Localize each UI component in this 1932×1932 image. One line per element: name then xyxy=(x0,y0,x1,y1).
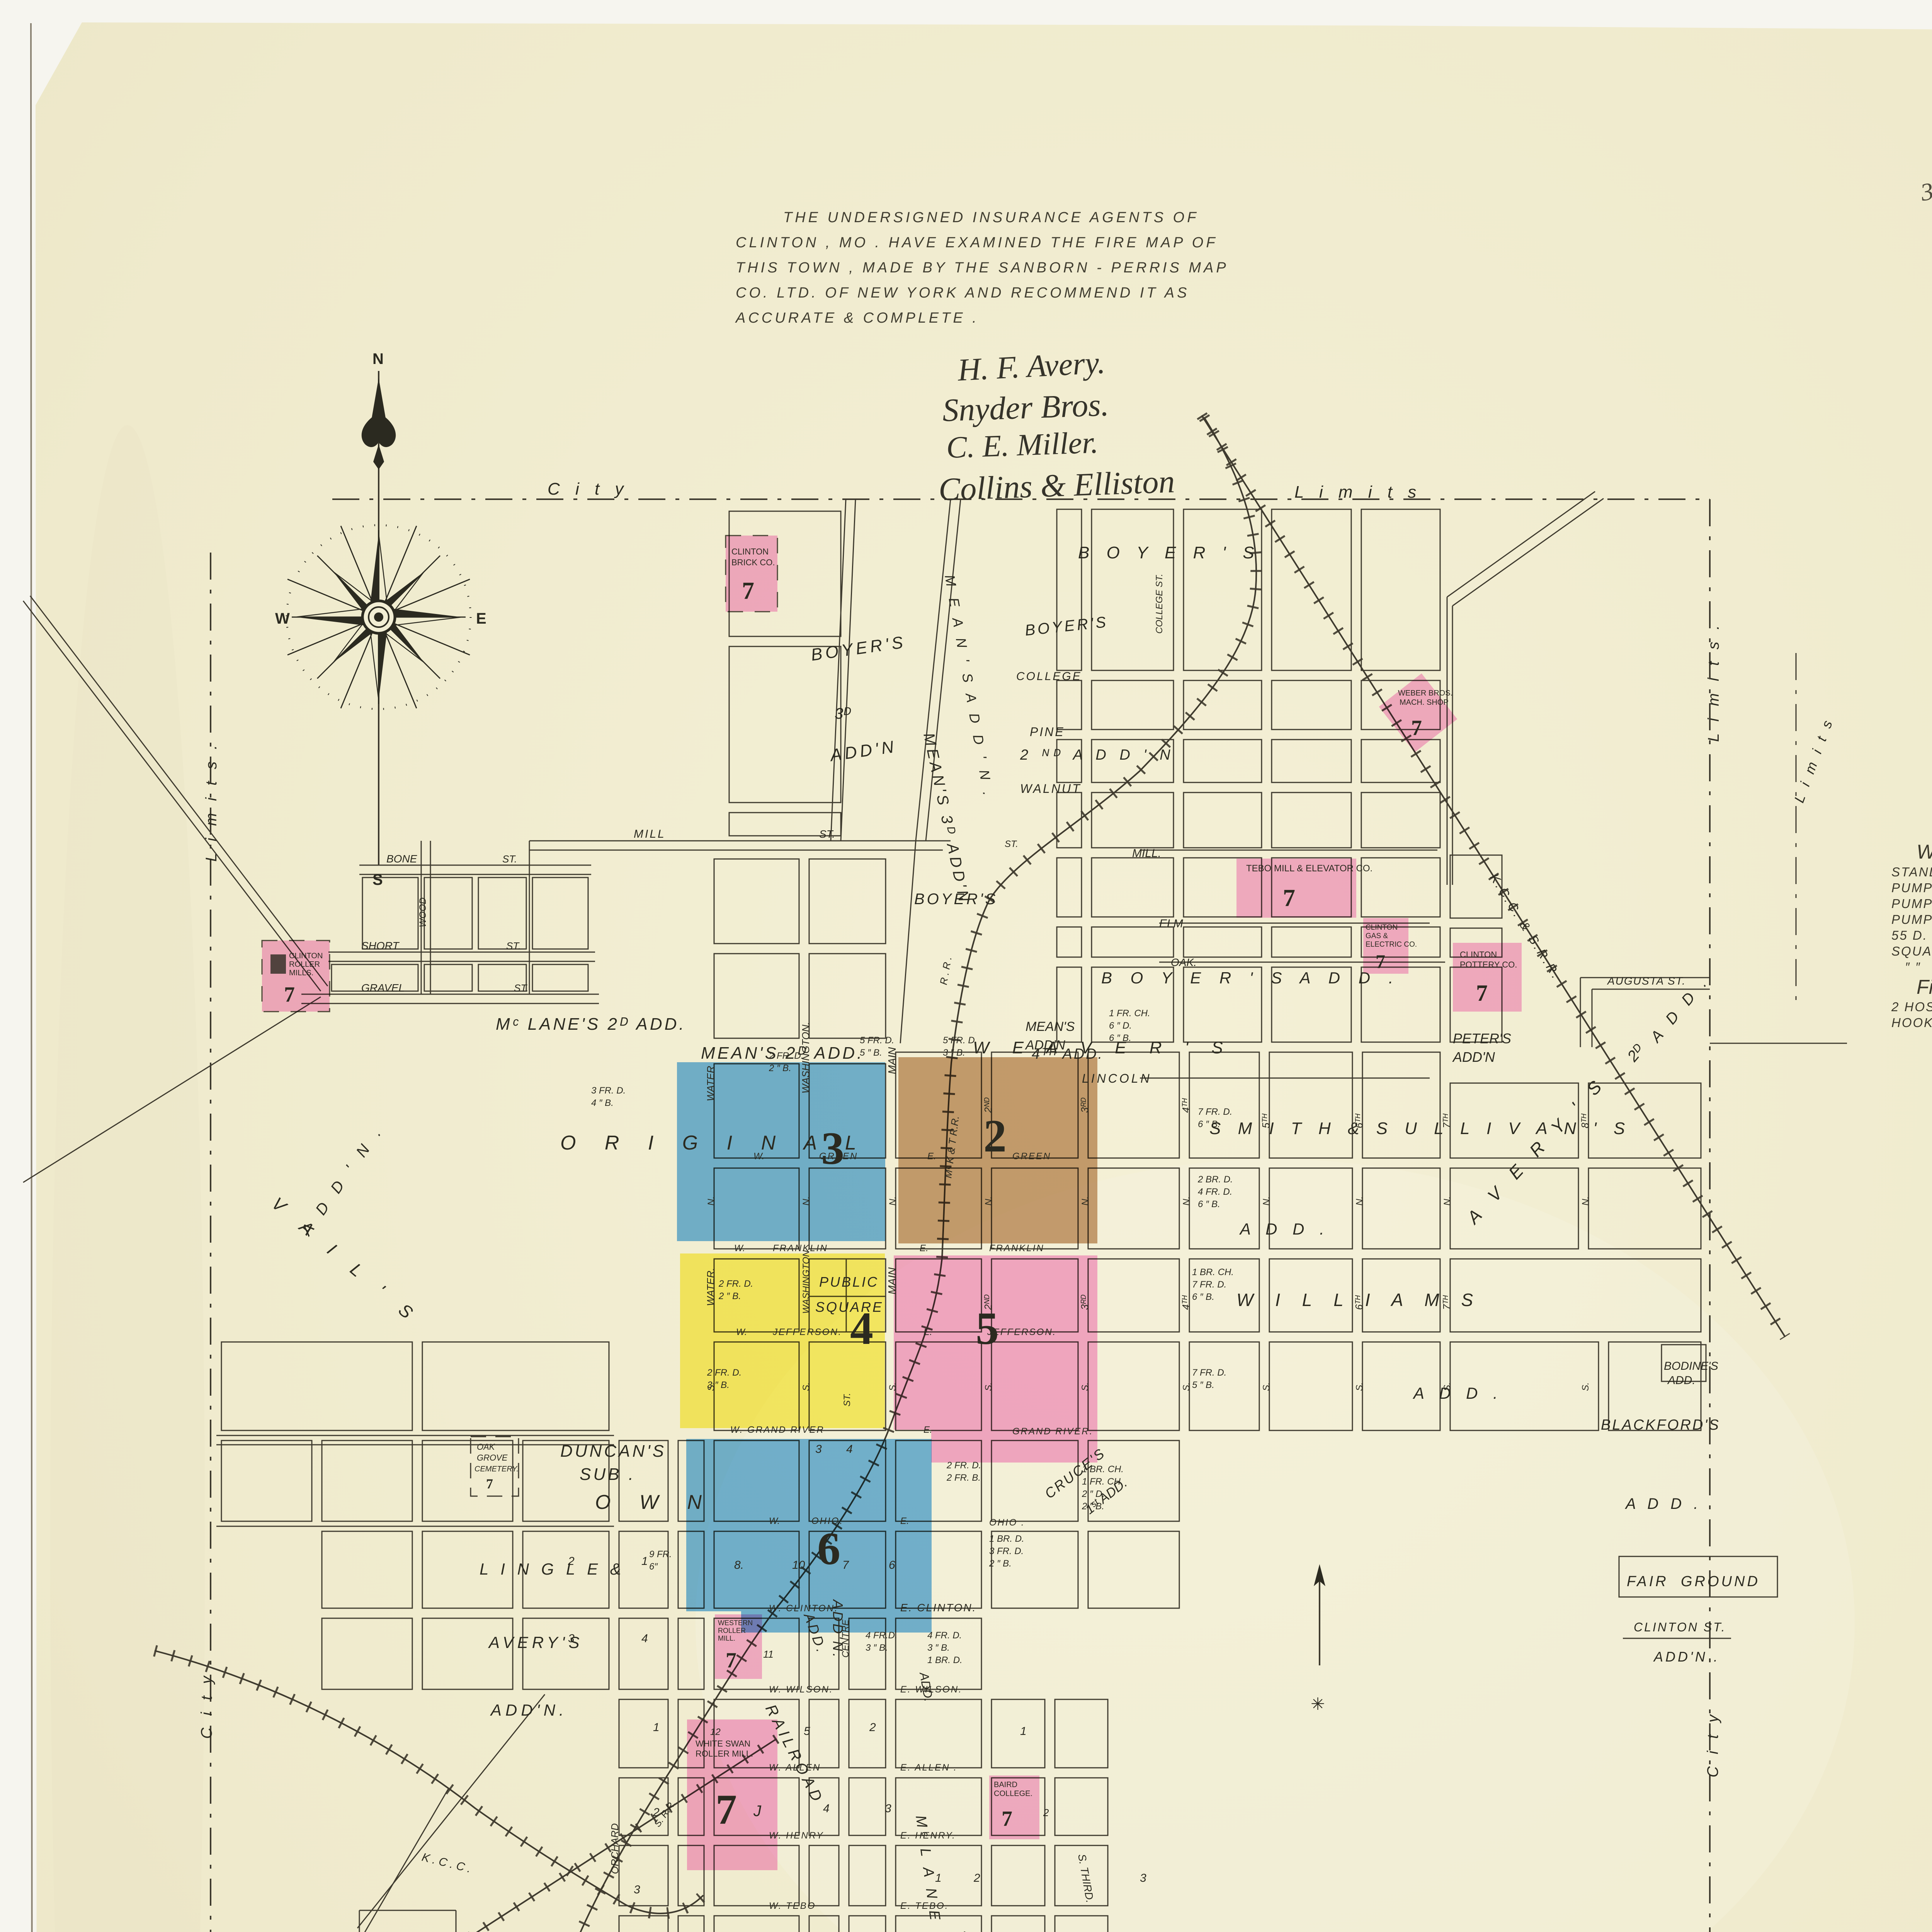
svg-text:2 FR. D.: 2 FR. D. xyxy=(946,1460,981,1471)
svg-text:CLINTON , MO . HAVE EXAMINED: CLINTON , MO . HAVE EXAMINED THE FIRE MA… xyxy=(736,235,1218,251)
svg-text:2 ″ B.: 2 ″ B. xyxy=(769,1063,791,1073)
svg-text:WESTERN: WESTERN xyxy=(718,1619,753,1627)
svg-text:N.: N. xyxy=(1580,1196,1591,1206)
svg-text:FRANKLIN: FRANKLIN xyxy=(773,1243,828,1253)
svg-text:CO. LTD. OF NEW YORK AND: CO. LTD. OF NEW YORK AND RECOMMEND IT AS xyxy=(736,285,1189,301)
svg-text:5 ″ B.: 5 ″ B. xyxy=(1192,1380,1214,1390)
svg-text:5ᵀᴴ: 5ᵀᴴ xyxy=(1260,1113,1272,1128)
svg-text:7: 7 xyxy=(842,1559,849,1571)
svg-text:L i m i t s .: L i m i t s . xyxy=(1705,621,1722,742)
svg-text:E.: E. xyxy=(927,1151,936,1162)
svg-text:ELM: ELM xyxy=(1159,917,1183,930)
svg-text:A D D .: A D D . xyxy=(1625,1495,1702,1512)
svg-text:C i t y: C i t y xyxy=(198,1672,215,1739)
svg-text:WHITE SWAN: WHITE SWAN xyxy=(696,1739,750,1748)
svg-text:7 FR. D.: 7 FR. D. xyxy=(1192,1367,1226,1378)
svg-text:6 ″ D.: 6 ″ D. xyxy=(1109,1020,1132,1031)
svg-text:MAIN: MAIN xyxy=(886,1267,898,1294)
svg-text:3ᴿᴰ: 3ᴿᴰ xyxy=(1079,1295,1090,1310)
svg-text:N.: N. xyxy=(706,1196,716,1206)
svg-text:OAK.: OAK. xyxy=(1171,956,1197,968)
svg-text:ROLLER: ROLLER xyxy=(289,960,320,969)
svg-text:2: 2 xyxy=(983,1110,1007,1162)
svg-text:3ᴿᴰ: 3ᴿᴰ xyxy=(1079,1098,1090,1113)
svg-text:N: N xyxy=(372,350,384,367)
svg-text:ST.: ST. xyxy=(1005,839,1018,849)
svg-text:OHIO .: OHIO . xyxy=(989,1517,1025,1528)
svg-text:6 ″ B.: 6 ″ B. xyxy=(1109,1033,1131,1043)
svg-text:CEMETERY.: CEMETERY. xyxy=(474,1465,519,1473)
svg-text:ELECTRIC CO.: ELECTRIC CO. xyxy=(1366,940,1417,949)
svg-text:2: 2 xyxy=(568,1555,575,1568)
svg-text:S.: S. xyxy=(888,1382,898,1391)
svg-text:3: 3 xyxy=(815,1443,822,1456)
svg-text:SUB .: SUB . xyxy=(580,1465,636,1484)
svg-text:N.: N. xyxy=(983,1196,994,1206)
svg-text:E. WILSON.: E. WILSON. xyxy=(900,1684,963,1695)
svg-text:4 FR. D.: 4 FR. D. xyxy=(1198,1187,1232,1197)
svg-text:GRAVEL: GRAVEL xyxy=(361,982,405,994)
svg-text:2: 2 xyxy=(653,1806,660,1819)
svg-text:N.: N. xyxy=(1442,1196,1452,1206)
svg-text:CLINTON: CLINTON xyxy=(289,952,323,960)
svg-text:9 FR.: 9 FR. xyxy=(649,1549,672,1560)
svg-text:E. TEBO.: E. TEBO. xyxy=(900,1901,949,1911)
svg-text:7: 7 xyxy=(1411,716,1422,740)
svg-text:7 FR. D.: 7 FR. D. xyxy=(1198,1107,1232,1117)
svg-text:MILL: MILL xyxy=(634,828,666,840)
svg-text:6ᵀᴴ: 6ᵀᴴ xyxy=(1353,1113,1365,1128)
svg-text:A D D .: A D D . xyxy=(1239,1220,1330,1238)
svg-text:6: 6 xyxy=(817,1523,840,1574)
svg-text:8ᵀᴴ: 8ᵀᴴ xyxy=(1579,1113,1591,1128)
svg-text:2ᴺᴰ: 2ᴺᴰ xyxy=(982,1294,994,1310)
svg-text:2 FR. D.: 2 FR. D. xyxy=(718,1279,753,1289)
svg-text:2 FR. B.: 2 FR. B. xyxy=(946,1473,981,1483)
svg-text:ORCHARD: ORCHARD xyxy=(609,1823,621,1874)
svg-text:E. CLINTON.: E. CLINTON. xyxy=(900,1602,976,1614)
svg-text:1 FR. CH.: 1 FR. CH. xyxy=(1109,1008,1150,1019)
svg-text:E.: E. xyxy=(923,1425,932,1435)
svg-text:S.: S. xyxy=(1080,1382,1090,1391)
svg-text:5: 5 xyxy=(804,1725,810,1738)
svg-text:STAND PIPE 120' 10' DIAM , CAP: STAND PIPE 120' 10' DIAM , CAP. 80000 GA… xyxy=(1891,865,1932,879)
svg-text:CLINTON: CLINTON xyxy=(731,547,769,556)
svg-text:ADD'N .: ADD'N . xyxy=(1653,1649,1720,1665)
svg-text:N.: N. xyxy=(888,1196,898,1206)
svg-text:MILL.: MILL. xyxy=(1132,847,1161,860)
svg-text:6 ″ B.: 6 ″ B. xyxy=(1198,1199,1220,1209)
svg-text:2: 2 xyxy=(1043,1807,1049,1818)
svg-text:55 D. HYD'TS . DOMESTIC PR: 55 D. HYD'TS . DOMESTIC PRESSURE 40 LBS.… xyxy=(1891,928,1932,942)
svg-text:WATER.: WATER. xyxy=(705,1268,716,1306)
svg-text:B O Y E R ' S A D D .: B O Y E R ' S A D D . xyxy=(1101,969,1400,987)
svg-text:7 FR. D.: 7 FR. D. xyxy=(1192,1279,1226,1290)
svg-text:BAIRD: BAIRD xyxy=(994,1781,1017,1789)
svg-text:7: 7 xyxy=(284,983,295,1007)
svg-text:C i t y: C i t y xyxy=(548,480,629,498)
svg-text:E. ALLEN .: E. ALLEN . xyxy=(900,1762,957,1773)
svg-text:4 ″ B.: 4 ″ B. xyxy=(591,1098,614,1108)
svg-text:JEFFERSON.: JEFFERSON. xyxy=(987,1327,1056,1337)
svg-text:1: 1 xyxy=(641,1555,648,1568)
svg-text:C i t y: C i t y xyxy=(1704,1711,1721,1777)
svg-text:2 ″ B.: 2 ″ B. xyxy=(718,1291,741,1301)
svg-text:S.: S. xyxy=(1261,1382,1272,1391)
svg-text:W. ALLEN: W. ALLEN xyxy=(769,1762,821,1773)
svg-text:2ᴺᴰ: 2ᴺᴰ xyxy=(982,1097,994,1113)
svg-text:L i m i t s .: L i m i t s . xyxy=(203,741,220,862)
svg-text:PUMP CAP. 9,000 GALL'S .: PUMP CAP. 9,000 GALL'S . 9½ MILES OF PIP… xyxy=(1891,912,1932,927)
svg-text:PUMPS CAP. 125,000 GALL'S E: PUMPS CAP. 125,000 GALL'S EACH & ONE DEA… xyxy=(1891,896,1932,911)
svg-text:3 FR. D.: 3 FR. D. xyxy=(591,1085,626,1096)
svg-text:6″: 6″ xyxy=(649,1561,658,1572)
svg-text:7: 7 xyxy=(1002,1807,1012,1831)
svg-text:2 ″ B.: 2 ″ B. xyxy=(1082,1501,1104,1512)
svg-text:SQUARE INCH . FIRE: SQUARE INCH . FIRE ″ 80 ″ ″ xyxy=(1891,944,1932,958)
svg-text:3: 3 xyxy=(634,1883,640,1896)
svg-text:W.: W. xyxy=(753,1151,764,1162)
svg-text:6: 6 xyxy=(889,1559,895,1571)
svg-text:ST.: ST. xyxy=(819,828,835,840)
svg-text:JEFFERSON.: JEFFERSON. xyxy=(772,1327,842,1337)
svg-text:N.: N. xyxy=(1181,1196,1192,1206)
svg-text:ST.: ST. xyxy=(506,940,521,952)
svg-text:4ᵀᴴ: 4ᵀᴴ xyxy=(1180,1098,1192,1113)
svg-text:ROLLER MILL.: ROLLER MILL. xyxy=(696,1749,753,1759)
svg-text:4: 4 xyxy=(823,1802,830,1815)
svg-text:1 BR. CH.: 1 BR. CH. xyxy=(1192,1267,1234,1277)
svg-text:SHORT: SHORT xyxy=(361,940,400,952)
svg-text:N.: N. xyxy=(1354,1196,1365,1206)
svg-text:2 BR. D.: 2 BR. D. xyxy=(1197,1174,1233,1185)
svg-text:MACH. SHOP: MACH. SHOP xyxy=(1400,698,1449,707)
svg-text:FAIR: FAIR xyxy=(1627,1573,1668,1590)
svg-text:OAK: OAK xyxy=(477,1442,495,1452)
svg-text:Snyder Bros.: Snyder Bros. xyxy=(942,387,1109,429)
svg-text:4ᵀᴴ: 4ᵀᴴ xyxy=(1180,1295,1192,1310)
svg-text:1: 1 xyxy=(935,1872,942,1884)
svg-text:HOOK & LADDER TRUCK , ALL DRI: HOOK & LADDER TRUCK , ALL DRIVEN BY HAND… xyxy=(1891,1015,1932,1030)
svg-text:WEBER BROS.: WEBER BROS. xyxy=(1398,689,1452,697)
svg-text:BRICK CO.: BRICK CO. xyxy=(731,558,775,567)
svg-text:THIS TOWN , MADE BY THE SA: THIS TOWN , MADE BY THE SANBORN - PERRIS… xyxy=(736,260,1229,276)
svg-text:WALNUT: WALNUT xyxy=(1020,782,1082,796)
svg-text:1 FR. CH.: 1 FR. CH. xyxy=(1082,1476,1123,1487)
svg-text:3 ″ B.: 3 ″ B. xyxy=(927,1643,950,1653)
svg-text:6 ″ B.: 6 ″ B. xyxy=(1198,1119,1220,1129)
svg-text:GRAND RIVER.: GRAND RIVER. xyxy=(1012,1426,1093,1437)
svg-text:7: 7 xyxy=(486,1476,493,1492)
svg-text:1: 1 xyxy=(653,1721,660,1734)
svg-text:ADD.: ADD. xyxy=(1667,1374,1696,1387)
svg-text:WASHINGTON.: WASHINGTON. xyxy=(801,1248,811,1314)
svg-text:1 BR. CH.: 1 BR. CH. xyxy=(1082,1464,1124,1475)
svg-text:2 FR. D.: 2 FR. D. xyxy=(769,1051,803,1061)
svg-text:PETER'S: PETER'S xyxy=(1453,1031,1511,1046)
svg-text:E.: E. xyxy=(923,1327,932,1337)
svg-text:WOOD: WOOD xyxy=(418,898,428,927)
svg-text:2 ″ B.: 2 ″ B. xyxy=(989,1558,1012,1569)
svg-text:CLINTON ST.: CLINTON ST. xyxy=(1634,1620,1726,1634)
svg-text:GROUND: GROUND xyxy=(1681,1573,1760,1590)
svg-text:2 ᴺᴰ A D D ' N: 2 ᴺᴰ A D D ' N xyxy=(1020,747,1175,763)
svg-text:5 FR. D.: 5 FR. D. xyxy=(860,1035,894,1046)
svg-text:4 FR.D.: 4 FR.D. xyxy=(866,1630,898,1641)
svg-text:3: 3 xyxy=(885,1802,891,1815)
svg-text:A D D .: A D D . xyxy=(1412,1384,1503,1402)
svg-text:7: 7 xyxy=(726,1648,736,1672)
svg-text:W: W xyxy=(275,610,290,627)
svg-text:MILLS.: MILLS. xyxy=(289,969,313,977)
svg-text:BODINE'S: BODINE'S xyxy=(1664,1360,1718,1372)
svg-text:L i m i t s: L i m i t s xyxy=(1294,483,1422,502)
svg-text:E. HENRY.: E. HENRY. xyxy=(900,1830,956,1841)
svg-text:DUNCAN'S: DUNCAN'S xyxy=(560,1442,666,1461)
svg-text:BLACKFORD'S: BLACKFORD'S xyxy=(1601,1417,1720,1433)
svg-text:COLLEGE.: COLLEGE. xyxy=(994,1789,1032,1798)
svg-text:WATER: WATER xyxy=(705,1066,716,1101)
svg-text:MILL.: MILL. xyxy=(718,1634,735,1642)
svg-text:S.: S. xyxy=(1442,1382,1452,1391)
svg-text:C. E. Miller.: C. E. Miller. xyxy=(946,425,1099,465)
svg-text:5 ″ B.: 5 ″ B. xyxy=(860,1048,882,1058)
svg-text:BONE: BONE xyxy=(386,853,417,865)
svg-text:N.: N. xyxy=(1080,1196,1090,1206)
svg-text:GROVE: GROVE xyxy=(477,1453,508,1463)
svg-text:GAS &: GAS & xyxy=(1366,932,1388,940)
svg-text:3: 3 xyxy=(1140,1872,1146,1884)
svg-text:2 HOSE CARTS & 550' OF 2½″ H: 2 HOSE CARTS & 550' OF 2½″ HOSE ON EACH … xyxy=(1891,1000,1932,1014)
svg-text:CLINTON: CLINTON xyxy=(1460,950,1497,959)
svg-text:S.: S. xyxy=(1181,1382,1192,1391)
svg-text:O W N: O W N xyxy=(595,1491,713,1514)
svg-text:2: 2 xyxy=(869,1721,876,1734)
svg-text:PINE: PINE xyxy=(1030,725,1065,739)
svg-text:PUMP HO. 1¼ MILES S.W. OF S: PUMP HO. 1¼ MILES S.W. OF SQUARE , 2 PER… xyxy=(1891,881,1932,895)
svg-text:W. GRAND RIVER: W. GRAND RIVER xyxy=(730,1425,825,1435)
svg-text:S.: S. xyxy=(1354,1382,1365,1391)
svg-text:W.: W. xyxy=(734,1243,745,1253)
svg-text:PUBLIC: PUBLIC xyxy=(819,1274,879,1290)
svg-text:W. TEBO: W. TEBO xyxy=(769,1901,816,1911)
svg-text:1: 1 xyxy=(1020,1725,1027,1738)
svg-text:3 FR. D.: 3 FR. D. xyxy=(989,1546,1024,1556)
svg-text:W. WILSON.: W. WILSON. xyxy=(769,1684,833,1695)
svg-text:GREEN: GREEN xyxy=(819,1151,858,1162)
svg-text:11: 11 xyxy=(763,1648,774,1660)
svg-text:J: J xyxy=(753,1803,762,1820)
svg-text:TEBO MILL & ELEVATOR CO.: TEBO MILL & ELEVATOR CO. xyxy=(1246,863,1372,874)
svg-text:ACCURATE & COMPLETE .: ACCURATE & COMPLETE . xyxy=(735,310,979,326)
svg-text:7: 7 xyxy=(1476,980,1488,1006)
svg-text:W.: W. xyxy=(769,1516,780,1526)
svg-text:8.: 8. xyxy=(734,1559,744,1571)
svg-text:GREEN: GREEN xyxy=(1012,1151,1051,1162)
svg-text:ST.: ST. xyxy=(514,982,529,994)
svg-text:BOYER'S: BOYER'S xyxy=(914,891,998,908)
svg-text:ADD'N: ADD'N xyxy=(1452,1049,1495,1065)
svg-text:5 FR. D.: 5 FR. D. xyxy=(943,1035,977,1046)
svg-text:ADD'N.: ADD'N. xyxy=(490,1701,568,1719)
svg-text:1 BR. D.: 1 BR. D. xyxy=(989,1534,1024,1544)
svg-text:FRANKLIN: FRANKLIN xyxy=(989,1243,1044,1253)
svg-text:COLLEGE: COLLEGE xyxy=(1016,670,1082,683)
svg-text:OHIO.: OHIO. xyxy=(811,1516,844,1526)
svg-text:AUGUSTA ST.: AUGUSTA ST. xyxy=(1607,975,1686,987)
svg-text:THE UNDERSIGNED INSURANCE: THE UNDERSIGNED INSURANCE AGENTS OF xyxy=(783,209,1199,226)
svg-text:ROLLER: ROLLER xyxy=(718,1627,746,1634)
svg-text:Water Facilities : Pᴇʀᴋɪɴs Sʏ: Water Facilities : Pᴇʀᴋɪɴs Sʏsᴛᴇᴍ . xyxy=(1917,841,1932,863)
svg-text:6ᵀᴴ: 6ᵀᴴ xyxy=(1353,1295,1365,1310)
svg-text:POTTERY CO.: POTTERY CO. xyxy=(1460,960,1517,969)
svg-text:MEAN'S: MEAN'S xyxy=(1026,1019,1075,1034)
svg-text:ST.: ST. xyxy=(502,853,517,865)
svg-text:3 ″ B.: 3 ″ B. xyxy=(943,1048,965,1058)
svg-text:ST.: ST. xyxy=(842,1393,852,1406)
svg-text:7ᵀᴴ: 7ᵀᴴ xyxy=(1441,1113,1452,1128)
svg-text:3 ″ B.: 3 ″ B. xyxy=(866,1643,888,1653)
svg-text:L I N G L E &: L I N G L E & xyxy=(480,1560,625,1578)
svg-text:7: 7 xyxy=(1283,884,1295,912)
svg-text:SQUARE: SQUARE xyxy=(815,1299,883,1315)
svg-text:4 FR. D.: 4 FR. D. xyxy=(927,1630,962,1641)
svg-text:W. HENRY: W. HENRY xyxy=(769,1830,824,1841)
svg-text:4: 4 xyxy=(641,1632,648,1645)
svg-text:B O Y E R ' S: B O Y E R ' S xyxy=(1078,543,1260,562)
svg-text:COLLEGE ST.: COLLEGE ST. xyxy=(1154,574,1165,634)
svg-text:LINCOLN: LINCOLN xyxy=(1082,1071,1152,1085)
svg-text:10: 10 xyxy=(792,1559,805,1571)
svg-text:E.: E. xyxy=(900,1516,909,1526)
svg-text:7: 7 xyxy=(716,1786,737,1833)
svg-text:W. CLINTON.: W. CLINTON. xyxy=(769,1603,838,1614)
svg-text:MAIN: MAIN xyxy=(886,1047,898,1074)
svg-text:2: 2 xyxy=(973,1872,980,1884)
svg-text:E: E xyxy=(476,610,486,627)
svg-text:✳: ✳ xyxy=(1311,1695,1325,1714)
svg-text:7ᵀᴴ: 7ᵀᴴ xyxy=(1441,1295,1452,1310)
svg-text:4: 4 xyxy=(846,1443,853,1456)
svg-text:S.: S. xyxy=(801,1382,811,1391)
svg-text:3: 3 xyxy=(568,1632,575,1645)
svg-text:Fire Department . Vᴏʟᴜɴᴛᴇᴇʀ ᴏ: Fire Department . Vᴏʟᴜɴᴛᴇᴇʀ ᴏғ 5ᴏ Mᴇɴ . xyxy=(1917,976,1932,998)
svg-text:″ ″: ″ ″ xyxy=(1905,960,1921,974)
svg-text:7: 7 xyxy=(742,577,754,604)
svg-text:CLINTON: CLINTON xyxy=(1366,923,1398,932)
svg-text:6 ″ B.: 6 ″ B. xyxy=(1192,1292,1214,1302)
svg-text:Mᶜ LANE'S 2ᴰ ADD.: Mᶜ LANE'S 2ᴰ ADD. xyxy=(496,1015,686,1034)
svg-text:N.: N. xyxy=(1261,1196,1272,1206)
svg-text:W E A V E R ' S: W E A V E R ' S xyxy=(973,1038,1232,1057)
svg-text:E.: E. xyxy=(920,1243,929,1253)
svg-text:12: 12 xyxy=(710,1727,721,1737)
svg-text:S: S xyxy=(372,871,383,888)
svg-text:S.: S. xyxy=(983,1382,994,1391)
svg-text:N.: N. xyxy=(801,1196,811,1206)
svg-text:CENTRE: CENTRE xyxy=(840,1619,851,1658)
svg-text:2 FR. D.: 2 FR. D. xyxy=(707,1367,742,1378)
svg-text:W.: W. xyxy=(736,1327,747,1337)
svg-text:2 ″ D.: 2 ″ D. xyxy=(1082,1489,1105,1499)
svg-text:1 BR. D.: 1 BR. D. xyxy=(927,1655,963,1665)
svg-text:S.: S. xyxy=(1580,1382,1591,1391)
svg-text:3 ″ B.: 3 ″ B. xyxy=(707,1380,730,1390)
svg-text:3ᴰ: 3ᴰ xyxy=(835,705,851,722)
